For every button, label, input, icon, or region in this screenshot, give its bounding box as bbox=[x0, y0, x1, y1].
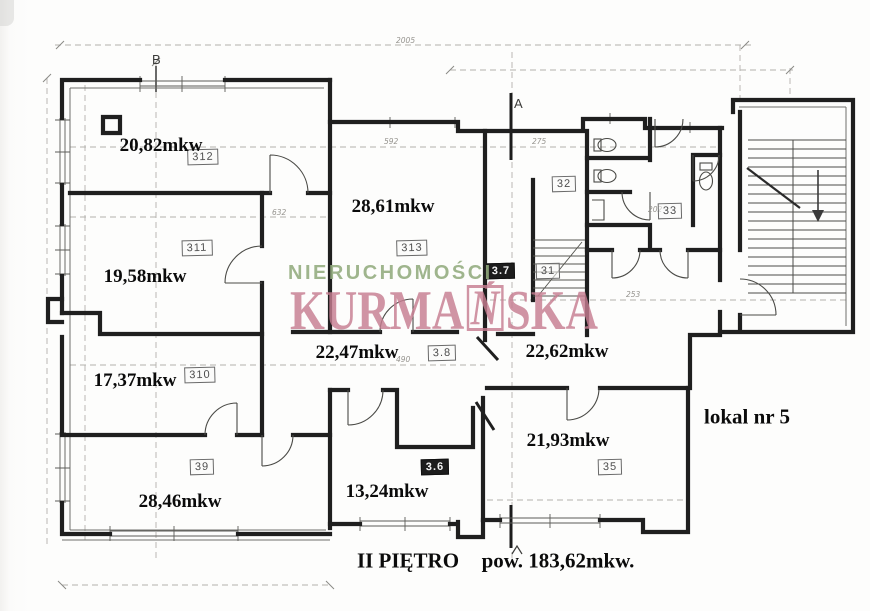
area-label-312: 20,82mkw bbox=[120, 135, 203, 157]
dim-253: 253 bbox=[626, 290, 641, 299]
room-tag-33: 33 bbox=[658, 203, 683, 220]
dim-632: 632 bbox=[272, 208, 287, 217]
floor-label: II PIĘTRO bbox=[357, 549, 459, 574]
area-label-39: 28,46mkw bbox=[139, 491, 222, 513]
door-arcs bbox=[205, 119, 776, 466]
room-tag-310: 310 bbox=[184, 367, 216, 384]
room-tag-31: 31 bbox=[536, 263, 561, 280]
floor-plan-drawing: B A 2005 592 275 632 490 253 202 bbox=[0, 0, 870, 611]
dim-total-top: 2005 bbox=[396, 36, 415, 45]
room-tag-313: 313 bbox=[396, 240, 428, 257]
area-label-310: 17,37mkw bbox=[94, 370, 177, 392]
area-label-38: 22,47mkw bbox=[316, 342, 399, 364]
room-tag-35: 35 bbox=[598, 459, 623, 476]
room-tag-32: 32 bbox=[552, 176, 577, 193]
unit-label: lokal nr 5 bbox=[704, 405, 790, 430]
room-tag-311: 311 bbox=[182, 240, 213, 257]
room-tag-38: 3.8 bbox=[428, 345, 457, 362]
room-tag-36: 3.6 bbox=[421, 459, 450, 476]
area-label-35: 21,93mkw bbox=[527, 430, 610, 452]
area-label-313: 28,61mkw bbox=[352, 196, 435, 218]
area-label-36: 13,24mkw bbox=[346, 481, 429, 503]
area-label-hall: 22,62mkw bbox=[526, 341, 609, 363]
axis-b-label: B bbox=[152, 52, 161, 67]
dim-275: 275 bbox=[532, 137, 547, 146]
toilet-icon bbox=[700, 172, 713, 190]
dim-592: 592 bbox=[384, 137, 399, 146]
staircase bbox=[747, 140, 846, 293]
scan-smudge bbox=[0, 0, 14, 26]
open-door-leaves bbox=[476, 337, 498, 430]
axis-letters: B A bbox=[152, 52, 523, 111]
axis-a-label: A bbox=[514, 96, 523, 111]
room-tag-39: 39 bbox=[190, 459, 215, 476]
total-area-label: pow. 183,62mkw. bbox=[482, 549, 635, 574]
floor-plan: B A 2005 592 275 632 490 253 202 NIERUCH… bbox=[0, 0, 870, 611]
area-label-311: 19,58mkw bbox=[104, 266, 187, 288]
room-tag-37: 3.7 bbox=[487, 263, 516, 280]
